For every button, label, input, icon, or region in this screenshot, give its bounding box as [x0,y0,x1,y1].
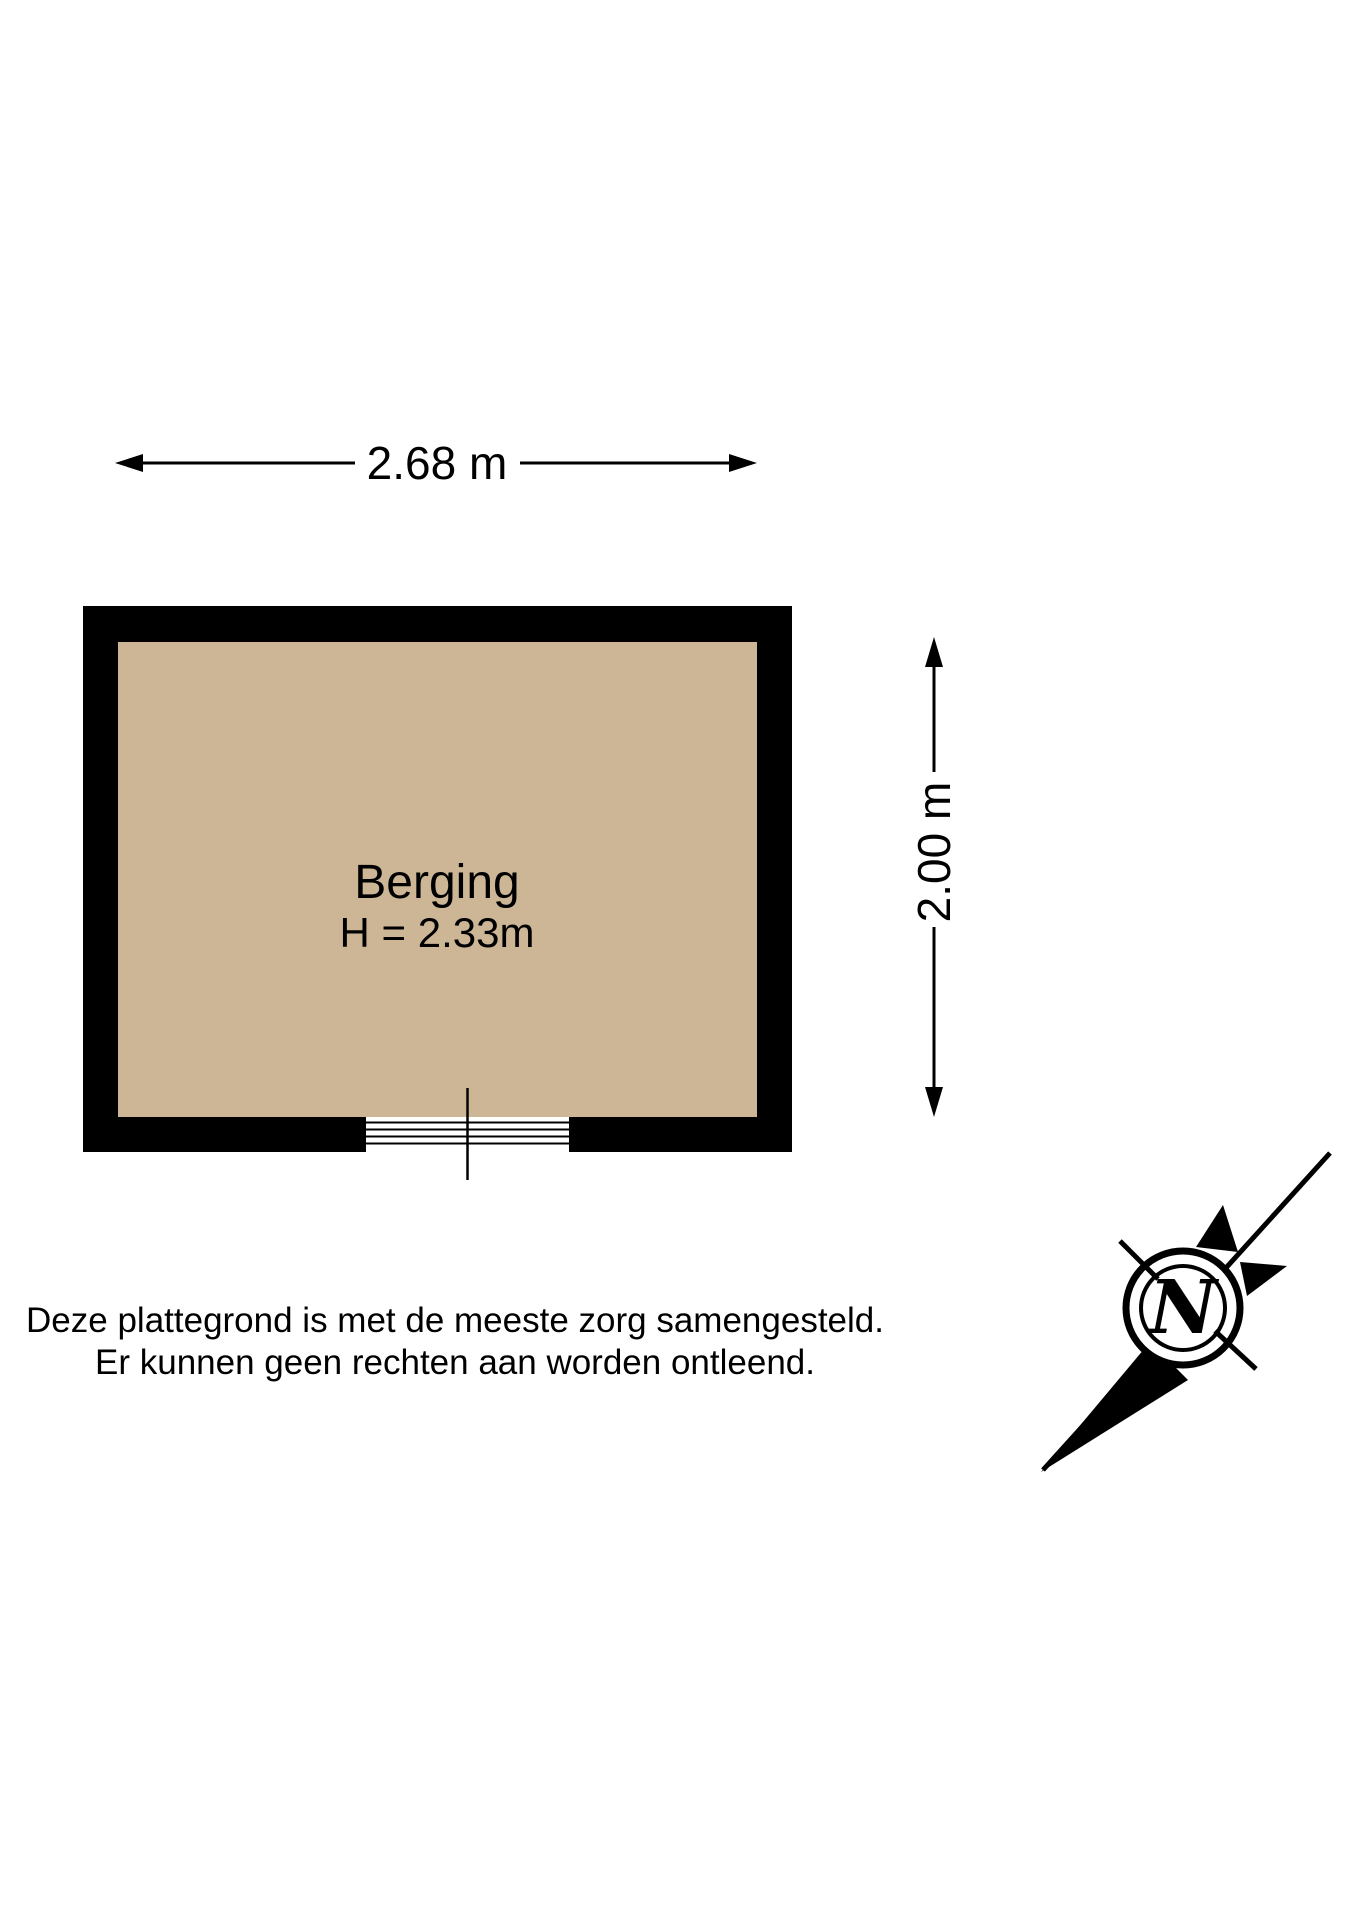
height-dimension-label: 2.00 m [908,782,960,923]
room-berging: Berging H = 2.33m [83,606,792,1180]
disclaimer: Deze plattegrond is met de meeste zorg s… [26,1301,884,1382]
width-dimension-arrowhead-right [729,454,757,472]
height-dimension-arrow: 2.00 m [908,637,960,1117]
width-dimension-label: 2.68 m [367,437,508,489]
disclaimer-line-2: Er kunnen geen rechten aan worden ontlee… [95,1343,815,1382]
floorplan-canvas: 2.68 m Berging H = 2.33m [0,0,1358,1920]
floorplan-page: 2.68 m Berging H = 2.33m [0,0,1358,1920]
compass-east-pointer [1240,1262,1287,1296]
compass-north-pointer [1196,1205,1238,1252]
ceiling-height-label: H = 2.33m [340,909,535,956]
width-dimension-arrow: 2.68 m [115,437,757,489]
height-dimension-arrowhead-bottom [925,1087,943,1117]
compass-rose: N [1041,1153,1330,1472]
room-name-label: Berging [354,856,519,909]
disclaimer-line-1: Deze plattegrond is met de meeste zorg s… [26,1301,884,1340]
compass-north-label: N [1147,1265,1219,1351]
width-dimension-arrowhead-left [115,454,143,472]
